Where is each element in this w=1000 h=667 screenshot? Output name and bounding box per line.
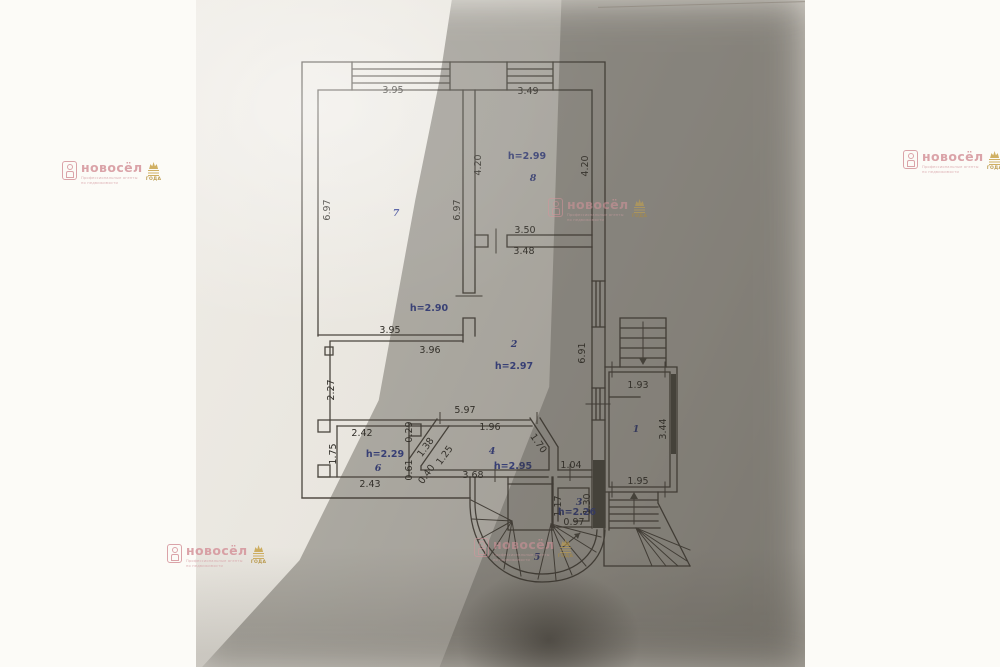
dim-room8-top: 3.49 (517, 86, 538, 97)
dim-room2-upper: 3.96 (419, 345, 440, 356)
novosel-logo-icon (474, 538, 489, 557)
room3-height: h=2.26 (558, 507, 597, 518)
watermark-brand-text: новосёл (922, 150, 984, 164)
watermark-tagline-line2: по недвижимости (186, 564, 223, 568)
watermark-tagline: Профессиональные агенты по недвижимости (81, 176, 143, 186)
dim-room4-diag-inner: 1.25 (434, 444, 455, 468)
dim-room8-bottom: 3.50 (514, 225, 535, 236)
dim-room2-right: 6.91 (577, 342, 588, 363)
room4-number: 4 (489, 446, 496, 457)
novosel-logo-icon (903, 150, 918, 169)
dim-room4-diag-right: 1.70 (527, 432, 548, 456)
watermark-tagline-line2: по недвижимости (81, 181, 118, 185)
room8-height: h=2.99 (508, 151, 546, 162)
dim-room6-pier-bottom: 0.61 (404, 459, 415, 480)
watermark-tagline-line2: по недвижимости (922, 170, 959, 174)
watermark-novosel-bottom-left: новосёл Профессиональные агенты по недви… (167, 544, 266, 568)
award-badge-year: ГОДА (558, 554, 573, 559)
dim-room2-top: 3.48 (513, 246, 534, 257)
watermark-tagline-line1: Профессиональные агенты (567, 213, 624, 217)
award-badge-icon: ГОДА (633, 199, 647, 219)
room7-number: 7 (393, 208, 400, 219)
dim-room4-threshold: 0.40 (416, 463, 437, 487)
novosel-logo-icon (167, 544, 182, 563)
watermark-tagline: Профессиональные агенты по недвижимости (493, 553, 555, 563)
room2-height: h=2.97 (495, 361, 533, 372)
dim-room7-right: 6.97 (452, 199, 463, 220)
watermark-tagline: Профессиональные агенты по недвижимости (922, 165, 984, 175)
dim-room1-right: 3.44 (658, 418, 669, 439)
room6-number: 6 (375, 463, 382, 474)
award-badge-icon: ГОДА (147, 162, 161, 182)
watermark-brand-text: новосёл (186, 544, 248, 558)
spiral-staircase (470, 477, 605, 582)
award-badge-year: ГОДА (146, 177, 161, 182)
dim-room8-left: 4.20 (473, 154, 484, 175)
dim-room6-left: 1.75 (328, 443, 339, 464)
room8-number: 8 (530, 173, 537, 184)
dim-room7-top: 3.95 (382, 85, 403, 96)
room2-number: 2 (510, 339, 518, 350)
dim-room6-pier-top: 0.29 (404, 421, 415, 442)
dim-room6-bottom: 2.43 (359, 479, 380, 490)
dim-room2-bottom: 5.97 (454, 405, 475, 416)
room1-number: 1 (633, 424, 640, 435)
dim-room8-right: 4.20 (580, 155, 591, 176)
award-badge-icon: ГОДА (559, 539, 573, 559)
room7-height: h=2.90 (410, 303, 449, 314)
dim-room3-bottom: 0.97 (563, 517, 584, 528)
right-wall-windows (586, 281, 610, 420)
watermark-tagline: Профессиональные агенты по недвижимости (567, 213, 629, 223)
dim-room4-right: 1.04 (560, 460, 581, 471)
award-badge-icon: ГОДА (252, 545, 266, 565)
dim-room7-left: 6.97 (322, 199, 333, 220)
dim-room1-bottom: 1.95 (627, 476, 648, 487)
watermark-tagline-line1: Профессиональные агенты (81, 176, 138, 180)
outer-walls (302, 62, 605, 528)
watermark-novosel-top-left: новосёл Профессиональные агенты по недви… (62, 161, 161, 185)
award-badge-year: ГОДА (251, 560, 266, 565)
award-badge-year: ГОДА (987, 166, 1000, 171)
watermark-novosel-center: новосёл Профессиональные агенты по недви… (548, 198, 647, 222)
room6-height: h=2.29 (366, 449, 404, 460)
novosel-logo-icon (62, 161, 77, 180)
watermark-tagline-line2: по недвижимости (567, 218, 604, 222)
dim-room4-top: 1.96 (479, 422, 500, 433)
watermark-novosel-bottom-center: новосёл Профессиональные агенты по недви… (474, 538, 573, 562)
watermark-tagline-line1: Профессиональные агенты (922, 165, 979, 169)
award-badge-icon: ГОДА (988, 151, 1000, 171)
award-badge-year: ГОДА (632, 214, 647, 219)
dim-room4-bottom: 3.68 (462, 470, 483, 481)
dim-room6-top: 2.42 (351, 428, 372, 439)
watermark-tagline-line1: Профессиональные агенты (493, 553, 550, 557)
watermark-tagline: Профессиональные агенты по недвижимости (186, 559, 248, 569)
stairs-top-right (620, 318, 666, 367)
interior-walls (318, 90, 592, 527)
dim-room2-left: 2.27 (326, 379, 337, 400)
dim-room1-top: 1.93 (627, 380, 648, 391)
watermark-tagline-line1: Профессиональные агенты (186, 559, 243, 563)
novosel-logo-icon (548, 198, 563, 217)
watermark-brand-text: новосёл (493, 538, 555, 552)
watermark-novosel-right: новосёл Профессиональные агенты по недви… (903, 150, 1000, 174)
watermark-brand-text: новосёл (567, 198, 629, 212)
watermark-brand-text: новосёл (81, 161, 143, 175)
watermark-tagline-line2: по недвижимости (493, 558, 530, 562)
room4-height: h=2.95 (494, 461, 532, 472)
floor-plan-drawing: 3.95 3.49 6.97 6.97 4.20 4.20 3.50 3.48 … (0, 0, 1000, 667)
dim-room7-bottom: 3.95 (379, 325, 400, 336)
